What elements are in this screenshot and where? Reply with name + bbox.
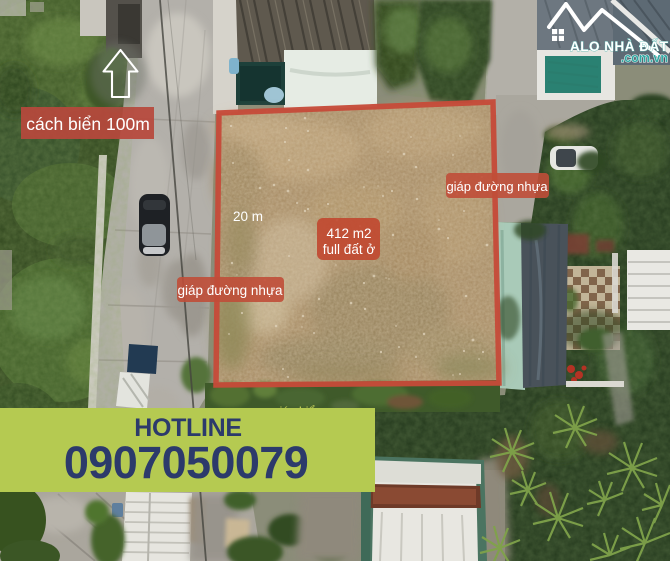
svg-text:giáp đường nhựa: giáp đường nhựa <box>446 179 548 194</box>
svg-text:full đất ở: full đất ở <box>323 242 376 257</box>
svg-text:0907050079: 0907050079 <box>64 437 308 488</box>
svg-text:20 m: 20 m <box>233 209 263 224</box>
svg-text:cách biển 100m: cách biển 100m <box>26 114 150 134</box>
svg-text:412 m2: 412 m2 <box>326 226 371 241</box>
svg-text:giáp đường nhựa: giáp đường nhựa <box>177 283 282 298</box>
svg-text:.com.vn: .com.vn <box>621 51 668 65</box>
